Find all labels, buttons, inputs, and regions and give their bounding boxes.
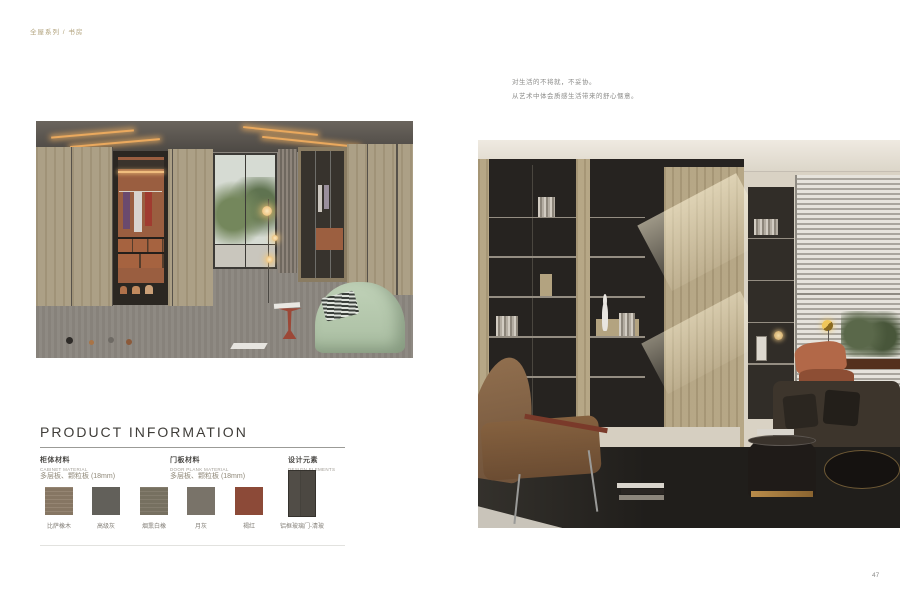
section-bottom-rule — [40, 545, 345, 546]
shoe — [120, 286, 128, 294]
side-table — [824, 450, 900, 489]
glass-cabinet-pane — [301, 151, 344, 278]
panel-seam — [71, 147, 73, 306]
window-rail — [795, 293, 900, 295]
cabinet-frame-line — [330, 151, 331, 278]
books-row — [496, 316, 519, 336]
shelf-column — [590, 165, 646, 450]
shoe — [145, 285, 153, 294]
plant — [841, 311, 900, 358]
shelf — [590, 217, 646, 219]
wardrobe-left — [36, 147, 113, 306]
wardrobe-right — [347, 144, 413, 296]
lamp-orb — [266, 256, 273, 263]
swatch-glass-door — [288, 470, 316, 517]
magazine-on-floor — [230, 343, 267, 349]
coffee-table — [748, 435, 816, 497]
intro-text: 对生活的不将就，不妥协。 从艺术中体会质感生活带来的舒心惬意。 — [512, 76, 638, 104]
shelf-divider — [532, 165, 534, 450]
shelf — [590, 376, 646, 378]
intro-line-2: 从艺术中体会质感生活带来的舒心惬意。 — [512, 90, 638, 104]
panel-seam — [367, 144, 369, 296]
swatch-russet-red — [235, 487, 263, 515]
cabinet-drawer-unit — [316, 228, 343, 250]
shelf — [748, 280, 794, 282]
shelf — [590, 256, 646, 258]
decor-ball — [108, 337, 114, 343]
product-info-title: PRODUCT INFORMATION — [40, 424, 248, 440]
glass-cabinet — [298, 147, 347, 282]
decor-ball — [89, 340, 94, 345]
shelf — [489, 217, 577, 219]
swatch-smoked-white-oak — [140, 487, 168, 515]
left-room-photo — [36, 121, 413, 358]
cabinet-material-zh: 柜体材料 — [40, 455, 88, 465]
shelf-backboard — [540, 274, 552, 297]
figurine-head — [603, 294, 607, 308]
shelf — [489, 256, 577, 258]
shoe — [132, 286, 140, 294]
cabinet-garment — [318, 185, 323, 212]
panel-seam — [396, 144, 398, 296]
wardrobe-mid — [168, 149, 213, 305]
books-row — [619, 313, 636, 336]
page-number: 47 — [872, 572, 879, 579]
drawer-row — [118, 252, 164, 268]
gold-rim — [751, 491, 813, 497]
table-top — [748, 435, 816, 446]
intro-line-1: 对生活的不将就，不妥协。 — [512, 76, 638, 90]
floor-book — [617, 483, 663, 488]
cabinet-frame-line — [315, 151, 316, 278]
shelf — [489, 296, 577, 298]
shelf — [748, 238, 794, 240]
door-material-spec: 多层板、颗粒板 (18mm) — [170, 471, 245, 481]
shelf — [590, 296, 646, 298]
photo-frame — [756, 336, 766, 362]
swatch-advanced-grey — [92, 487, 120, 515]
door-material-zh: 门板材料 — [170, 455, 229, 465]
hanging-garment — [123, 192, 130, 229]
wood-pilaster — [576, 159, 589, 450]
shelf — [590, 336, 646, 338]
swatch-label: 铝框玻璃门-清玻 — [267, 521, 337, 530]
curtain — [278, 149, 297, 272]
lamp-orb — [272, 235, 278, 241]
closet-top-box — [118, 160, 164, 169]
design-elements-zh: 设计元素 — [288, 455, 335, 465]
book-on-table — [757, 429, 795, 435]
books-row — [754, 219, 778, 235]
open-closet — [113, 151, 168, 305]
swatch-pisa-oak — [45, 487, 73, 515]
shelf — [748, 363, 794, 365]
drawer-row — [118, 237, 164, 253]
sofa-pillow — [823, 390, 861, 427]
panel-seam — [172, 149, 174, 305]
catalog-section-header: 全屋系列 / 书房 — [30, 26, 83, 36]
material-column-cabinet: 柜体材料 CABINET MATERIAL — [40, 455, 88, 472]
floor-book — [619, 495, 663, 500]
shelf — [489, 336, 577, 338]
shelf — [748, 322, 794, 324]
books-row — [538, 197, 556, 217]
decor-ball — [66, 337, 73, 344]
hanging-garment — [145, 192, 152, 226]
wood-panel-center — [664, 167, 744, 450]
sofa-pillow — [782, 393, 818, 429]
cabinet-garment — [324, 185, 328, 209]
window-mullion — [245, 155, 247, 267]
hanging-garment — [134, 192, 142, 232]
title-underline — [40, 447, 345, 448]
shelf-lamp — [774, 331, 783, 340]
right-room-photo — [478, 140, 900, 528]
cabinet-material-spec: 多层板、颗粒板 (18mm) — [40, 471, 115, 481]
material-column-door: 门板材料 DOOR PLANK MATERIAL — [170, 455, 229, 472]
swatch-moon-grey — [187, 487, 215, 515]
floor-book — [621, 489, 663, 494]
closet-led — [118, 171, 164, 173]
